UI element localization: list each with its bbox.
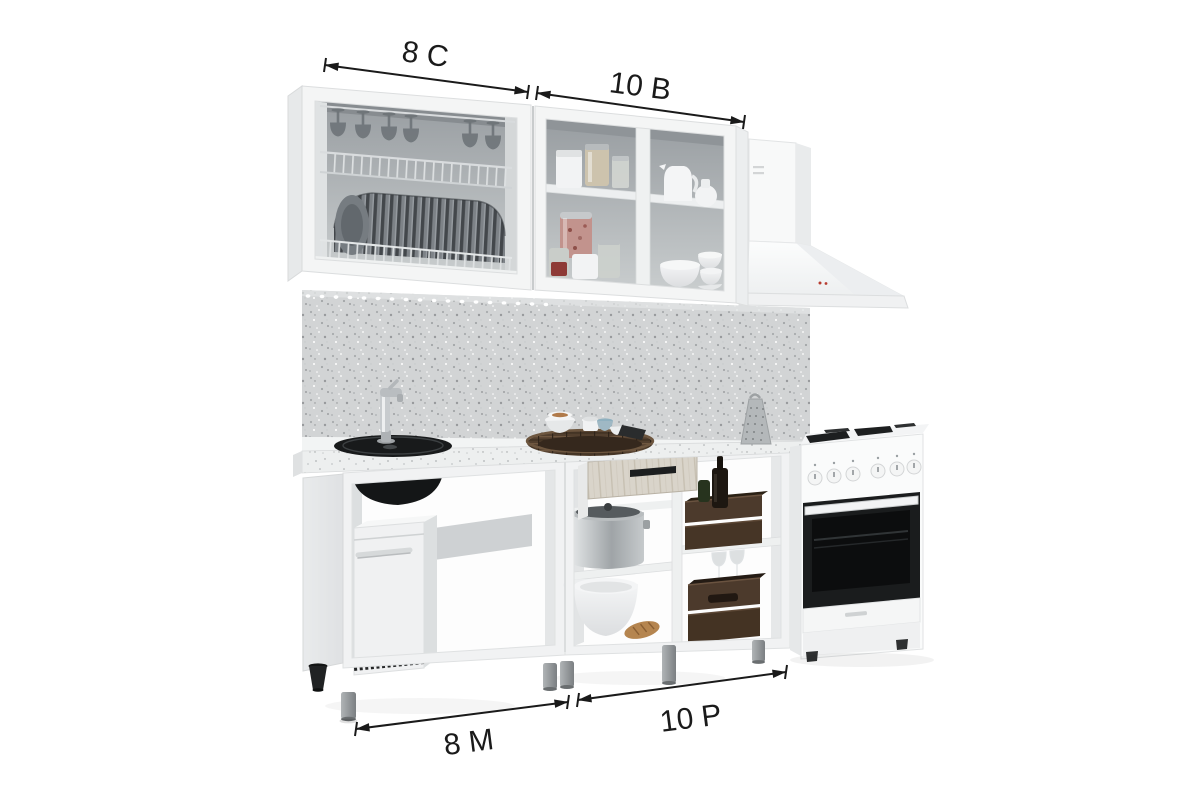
mini-fridge bbox=[354, 515, 437, 675]
faucet-spout bbox=[397, 394, 403, 402]
wall-cabinet-open-shelves bbox=[535, 106, 748, 306]
cabinet-side-panel bbox=[288, 86, 302, 281]
dim-label-top-right: 10 В bbox=[607, 66, 672, 107]
base-cabinet-open bbox=[563, 445, 790, 655]
range-hood bbox=[739, 139, 908, 308]
wall-cabinet-dish-rack bbox=[288, 86, 531, 290]
shelf-divider bbox=[672, 469, 682, 650]
adjustable-feet bbox=[309, 663, 328, 691]
dim-label-bottom-left: 8 М bbox=[442, 723, 496, 762]
dim-label-bottom-right: 10 Р bbox=[658, 698, 723, 739]
kitchen-render-canvas: 8 С 10 В 8 М 10 Р bbox=[0, 0, 1200, 800]
hood-indicator-light bbox=[819, 282, 822, 285]
hood-vent-slit bbox=[753, 172, 764, 174]
shelf-divider bbox=[636, 127, 650, 291]
base-side-panel bbox=[303, 474, 343, 671]
base-cabinet-sink bbox=[303, 459, 565, 675]
cabinet-side-panel bbox=[736, 126, 748, 306]
dim-label-top-left: 8 С bbox=[400, 35, 451, 74]
hood-vent-slit bbox=[753, 166, 764, 168]
cooker-foot bbox=[896, 639, 908, 650]
freestanding-cooker bbox=[790, 423, 929, 662]
oven-door bbox=[803, 492, 920, 609]
sink-drain bbox=[383, 445, 397, 449]
dimension-arrow-top-left: 8 С bbox=[324, 35, 529, 99]
hood-indicator-light bbox=[825, 282, 828, 285]
kitchen-product-image: 8 С 10 В 8 М 10 Р bbox=[0, 0, 1200, 800]
sink bbox=[334, 435, 452, 457]
